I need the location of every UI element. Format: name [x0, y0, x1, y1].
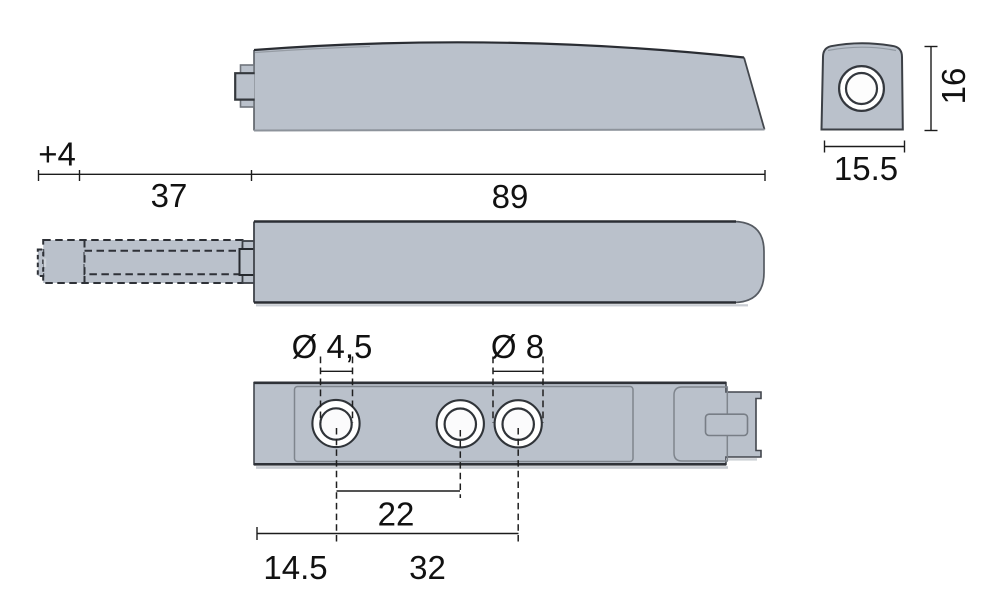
svg-text:32: 32 [409, 549, 446, 586]
svg-text:14.5: 14.5 [263, 549, 327, 586]
svg-text:16: 16 [935, 68, 972, 105]
svg-text:37: 37 [151, 177, 188, 214]
svg-text:15.5: 15.5 [834, 150, 898, 187]
svg-text:89: 89 [492, 178, 529, 215]
svg-text:Ø 8: Ø 8 [491, 328, 544, 365]
svg-text:Ø 4,5: Ø 4,5 [292, 328, 373, 365]
svg-text:+4: +4 [38, 136, 76, 173]
svg-text:22: 22 [378, 496, 415, 533]
